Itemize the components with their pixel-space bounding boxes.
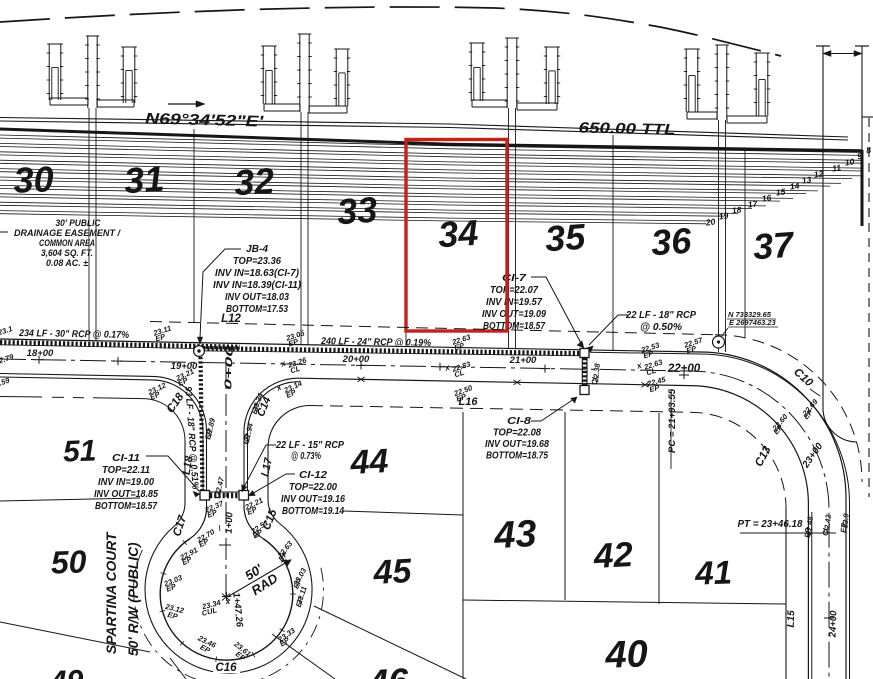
svg-text:20+00: 20+00 bbox=[342, 354, 370, 365]
svg-text:51: 51 bbox=[62, 434, 97, 468]
svg-text:x: x bbox=[443, 362, 451, 372]
svg-text:TOP=22.00: TOP=22.00 bbox=[289, 482, 337, 493]
svg-text:SPARTINA COURT: SPARTINA COURT bbox=[104, 531, 119, 654]
svg-text:C13: C13 bbox=[753, 444, 774, 469]
svg-text:INV IN=18.39(CI-11): INV IN=18.39(CI-11) bbox=[213, 280, 302, 291]
svg-text:TOP=22.07: TOP=22.07 bbox=[490, 285, 538, 296]
svg-text:15: 15 bbox=[775, 186, 786, 197]
svg-text:N69°34'52"E': N69°34'52"E' bbox=[145, 110, 265, 130]
svg-text:43: 43 bbox=[492, 513, 537, 557]
svg-text:BOTTOM=19.14: BOTTOM=19.14 bbox=[282, 506, 344, 517]
svg-text:EP: EP bbox=[803, 526, 813, 538]
svg-text:31: 31 bbox=[123, 158, 166, 202]
svg-text:INV OUT=19.68: INV OUT=19.68 bbox=[485, 439, 549, 450]
svg-text:46: 46 bbox=[366, 660, 410, 679]
svg-text:45: 45 bbox=[372, 552, 414, 592]
svg-text:10: 10 bbox=[844, 156, 855, 167]
svg-text:8: 8 bbox=[866, 145, 872, 156]
svg-text:PT = 23+46.18: PT = 23+46.18 bbox=[738, 518, 803, 530]
svg-text:50: 50 bbox=[50, 543, 87, 580]
svg-text:CL: CL bbox=[590, 374, 600, 385]
svg-text:EP: EP bbox=[167, 610, 180, 621]
svg-text:INV OUT=19.09: INV OUT=19.09 bbox=[482, 309, 546, 320]
svg-text:INV IN=18.63(CI-7): INV IN=18.63(CI-7) bbox=[215, 268, 300, 279]
svg-text:13: 13 bbox=[801, 174, 812, 185]
svg-text:22 LF - 15" RCP: 22 LF - 15" RCP bbox=[275, 440, 344, 451]
svg-text:CL: CL bbox=[821, 525, 831, 536]
svg-text:16: 16 bbox=[761, 192, 772, 203]
svg-text:0.08 AC. ±: 0.08 AC. ± bbox=[46, 258, 88, 268]
svg-text:21+00: 21+00 bbox=[509, 355, 537, 366]
svg-text:0+00: 0+00 bbox=[223, 345, 236, 390]
svg-text:@ 0.73%: @ 0.73% bbox=[291, 451, 321, 462]
svg-text:24+00: 24+00 bbox=[828, 610, 840, 639]
svg-text:40: 40 bbox=[604, 633, 649, 676]
svg-text:14: 14 bbox=[789, 180, 800, 191]
svg-text:TOP=22.11: TOP=22.11 bbox=[102, 465, 150, 476]
svg-text:37: 37 bbox=[752, 224, 797, 268]
svg-text:42: 42 bbox=[592, 535, 634, 576]
svg-text:x: x bbox=[635, 360, 643, 370]
svg-text:BOTTOM=18.57: BOTTOM=18.57 bbox=[95, 501, 157, 512]
svg-text:x: x bbox=[225, 597, 231, 606]
svg-text:32: 32 bbox=[233, 160, 276, 204]
svg-text:18+00: 18+00 bbox=[27, 348, 54, 359]
svg-text:30' PUBLIC: 30' PUBLIC bbox=[56, 218, 102, 228]
svg-text:36: 36 bbox=[650, 220, 694, 264]
svg-text:50' R/W (PUBLIC): 50' R/W (PUBLIC) bbox=[126, 542, 141, 656]
svg-text:INV IN=19.00: INV IN=19.00 bbox=[98, 477, 154, 488]
svg-text:23.1: 23.1 bbox=[0, 324, 14, 337]
svg-text:PC = 21+93.55: PC = 21+93.55 bbox=[667, 388, 678, 453]
svg-text:INV IN=19.57: INV IN=19.57 bbox=[486, 297, 542, 308]
svg-text:17: 17 bbox=[747, 198, 759, 209]
svg-text:30: 30 bbox=[13, 158, 54, 200]
svg-text:2.79: 2.79 bbox=[0, 352, 15, 366]
svg-text:49: 49 bbox=[48, 664, 84, 679]
svg-text:1+47.26: 1+47.26 bbox=[230, 592, 245, 628]
svg-text:INV OUT=19.16: INV OUT=19.16 bbox=[281, 494, 345, 505]
svg-text:41: 41 bbox=[694, 553, 733, 591]
svg-text:L15: L15 bbox=[786, 610, 798, 628]
svg-text:35: 35 bbox=[544, 216, 588, 260]
svg-text:BOTTOM=18.75: BOTTOM=18.75 bbox=[486, 451, 548, 462]
svg-text:EP: EP bbox=[839, 521, 849, 533]
svg-text:11: 11 bbox=[832, 162, 842, 173]
svg-text:19: 19 bbox=[718, 210, 729, 221]
svg-text:234 LF - 30" RCP @ 0.17%: 234 LF - 30" RCP @ 0.17% bbox=[18, 328, 129, 341]
svg-text:CI-8: CI-8 bbox=[507, 416, 532, 427]
svg-text:22+00: 22+00 bbox=[667, 363, 701, 375]
svg-text:33: 33 bbox=[336, 189, 379, 233]
svg-text:650.00 TTL: 650.00 TTL bbox=[578, 119, 675, 138]
svg-text:22 LF - 18" RCP: 22 LF - 18" RCP bbox=[625, 310, 696, 321]
svg-text:@ 0.50%: @ 0.50% bbox=[640, 322, 682, 333]
svg-text:C16: C16 bbox=[215, 662, 237, 674]
svg-text:INV OUT=18.03: INV OUT=18.03 bbox=[225, 292, 289, 303]
svg-text:L17: L17 bbox=[259, 456, 275, 478]
svg-text:12: 12 bbox=[813, 168, 824, 179]
svg-text:34: 34 bbox=[437, 212, 480, 256]
svg-text:DRAINAGE EASEMENT /: DRAINAGE EASEMENT / bbox=[14, 228, 122, 238]
svg-text:TOP=22.08: TOP=22.08 bbox=[493, 428, 541, 439]
svg-text:3,604 SQ. FT.: 3,604 SQ. FT. bbox=[41, 248, 93, 258]
svg-text:CI-11: CI-11 bbox=[112, 453, 141, 464]
svg-text:240 LF - 24" RCP @ 0.19%: 240 LF - 24" RCP @ 0.19% bbox=[320, 336, 431, 349]
svg-text:C18: C18 bbox=[165, 391, 187, 416]
svg-text:C17: C17 bbox=[171, 514, 189, 538]
svg-text:CI-12: CI-12 bbox=[299, 470, 328, 481]
svg-text:44: 44 bbox=[349, 442, 390, 482]
svg-text:C15: C15 bbox=[261, 507, 280, 532]
svg-text:18: 18 bbox=[731, 204, 742, 215]
svg-text:1+00: 1+00 bbox=[224, 511, 236, 533]
svg-text:JB-4: JB-4 bbox=[246, 244, 268, 255]
svg-text:20: 20 bbox=[704, 216, 716, 227]
svg-text:TOP=23.36: TOP=23.36 bbox=[233, 256, 281, 267]
svg-text:COMMON AREA: COMMON AREA bbox=[39, 238, 95, 248]
